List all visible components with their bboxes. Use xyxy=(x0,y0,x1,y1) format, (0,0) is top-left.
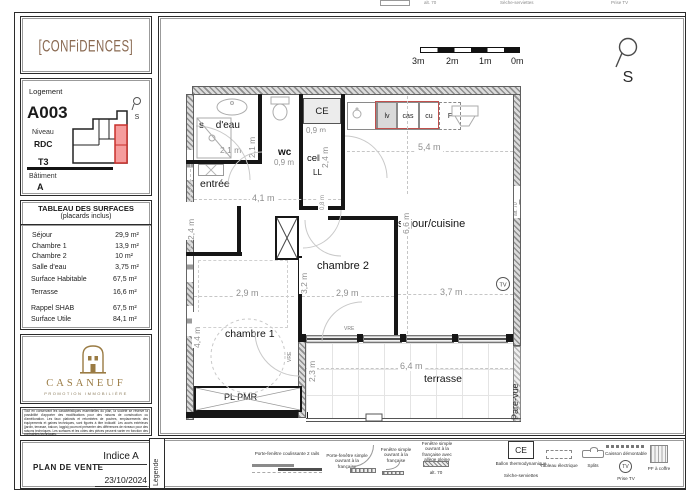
door-arc-terrace xyxy=(322,302,362,342)
legend-item-note: alt. 70 xyxy=(420,470,452,475)
legend-item-label2: Prise TV xyxy=(610,476,642,481)
prise-tv-symbol-label: TV xyxy=(622,464,628,470)
ce-symbol: CE xyxy=(508,441,534,459)
sliding-door-symbol xyxy=(252,464,322,473)
pmr-turning-circle xyxy=(211,319,285,393)
tv-socket-icon: TV xyxy=(497,278,510,291)
legend-item-label: Caisson démontable xyxy=(598,451,654,456)
sill-symbol xyxy=(350,468,376,473)
legend-item-label: Tableau électrique xyxy=(539,463,579,468)
sill-symbol xyxy=(382,471,404,475)
legend-tab: Légende xyxy=(149,438,165,489)
legend-item-label: Fenêtre simple ouvrant à la française xyxy=(378,447,414,463)
north-arrow-icon: S xyxy=(616,39,637,87)
allege-symbol xyxy=(423,461,449,467)
legend-item-label2: Sèche-serviettes xyxy=(495,473,547,478)
north-letter: S xyxy=(623,69,634,86)
legend-item-label: Splits xyxy=(582,463,604,468)
door-arc-ch2 xyxy=(305,220,341,256)
caisson-symbol xyxy=(606,445,646,448)
legend-item-label: Fenêtre simple ouvrant à la française av… xyxy=(418,441,456,463)
prise-tv-symbol: TV xyxy=(619,460,632,473)
toilet-icon xyxy=(271,97,289,104)
tv-label: TV xyxy=(499,283,506,289)
plan-symbols-overlay: TV S xyxy=(0,0,700,495)
pf-coffre-symbol xyxy=(650,445,668,463)
door-arc-sejour xyxy=(345,136,387,178)
legend-tab-label: Légende xyxy=(153,443,160,486)
door-arc-ch1 xyxy=(255,332,299,376)
plan-de-vente-sheet: alt. 70 Sèche-serviettes Prise TV [CONFi… xyxy=(0,0,700,495)
terrace-drain-icon xyxy=(366,414,382,421)
door-arc-entree xyxy=(196,126,250,180)
hood-icon xyxy=(452,106,478,116)
door-arc-cell xyxy=(303,210,341,248)
legend-item-label: PF à coffre xyxy=(644,466,674,471)
legend-item-label: Porte-fenêtre coulissante 2 rails xyxy=(248,451,326,456)
ce-symbol-label: CE xyxy=(515,445,527,455)
sink-icon xyxy=(353,110,361,118)
tableau-electrique-symbol xyxy=(546,450,572,459)
